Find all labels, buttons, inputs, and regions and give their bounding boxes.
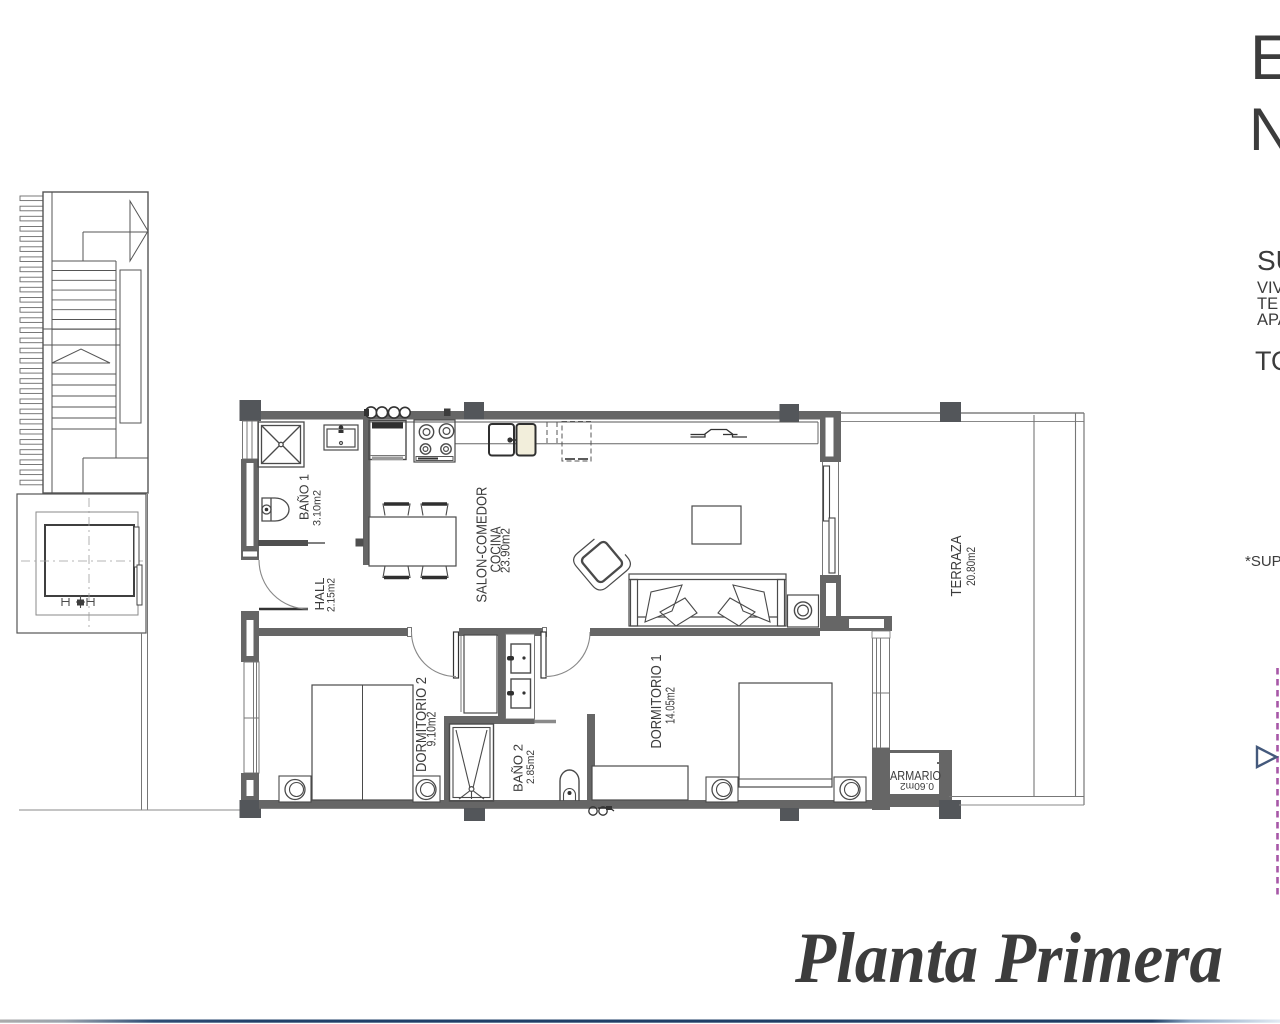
svg-text:3.10m2: 3.10m2 xyxy=(312,490,324,526)
svg-text:2.15m2: 2.15m2 xyxy=(326,578,338,612)
svg-text:E: E xyxy=(1250,23,1280,93)
svg-text:APA: APA xyxy=(1257,311,1280,329)
svg-text:0.60m2: 0.60m2 xyxy=(900,780,934,792)
svg-text:BAÑO 2: BAÑO 2 xyxy=(511,744,526,792)
svg-text:9.10m2: 9.10m2 xyxy=(425,711,439,746)
svg-text:20.80m2: 20.80m2 xyxy=(966,547,978,586)
svg-text:BAÑO 1: BAÑO 1 xyxy=(297,474,312,520)
svg-text:SUP: SUP xyxy=(1257,245,1280,276)
svg-text:TO: TO xyxy=(1255,346,1280,376)
svg-text:2.85m2: 2.85m2 xyxy=(525,750,537,784)
svg-text:Planta Primera: Planta Primera xyxy=(794,918,1223,998)
svg-text:14.05m2: 14.05m2 xyxy=(664,687,678,724)
svg-text:23.90m2: 23.90m2 xyxy=(499,528,513,573)
svg-text:*SUP: *SUP xyxy=(1245,553,1280,570)
svg-text:N: N xyxy=(1249,96,1280,163)
svg-text:TERRAZA: TERRAZA xyxy=(949,535,965,596)
svg-text:DORMITORIO 1: DORMITORIO 1 xyxy=(648,655,665,749)
